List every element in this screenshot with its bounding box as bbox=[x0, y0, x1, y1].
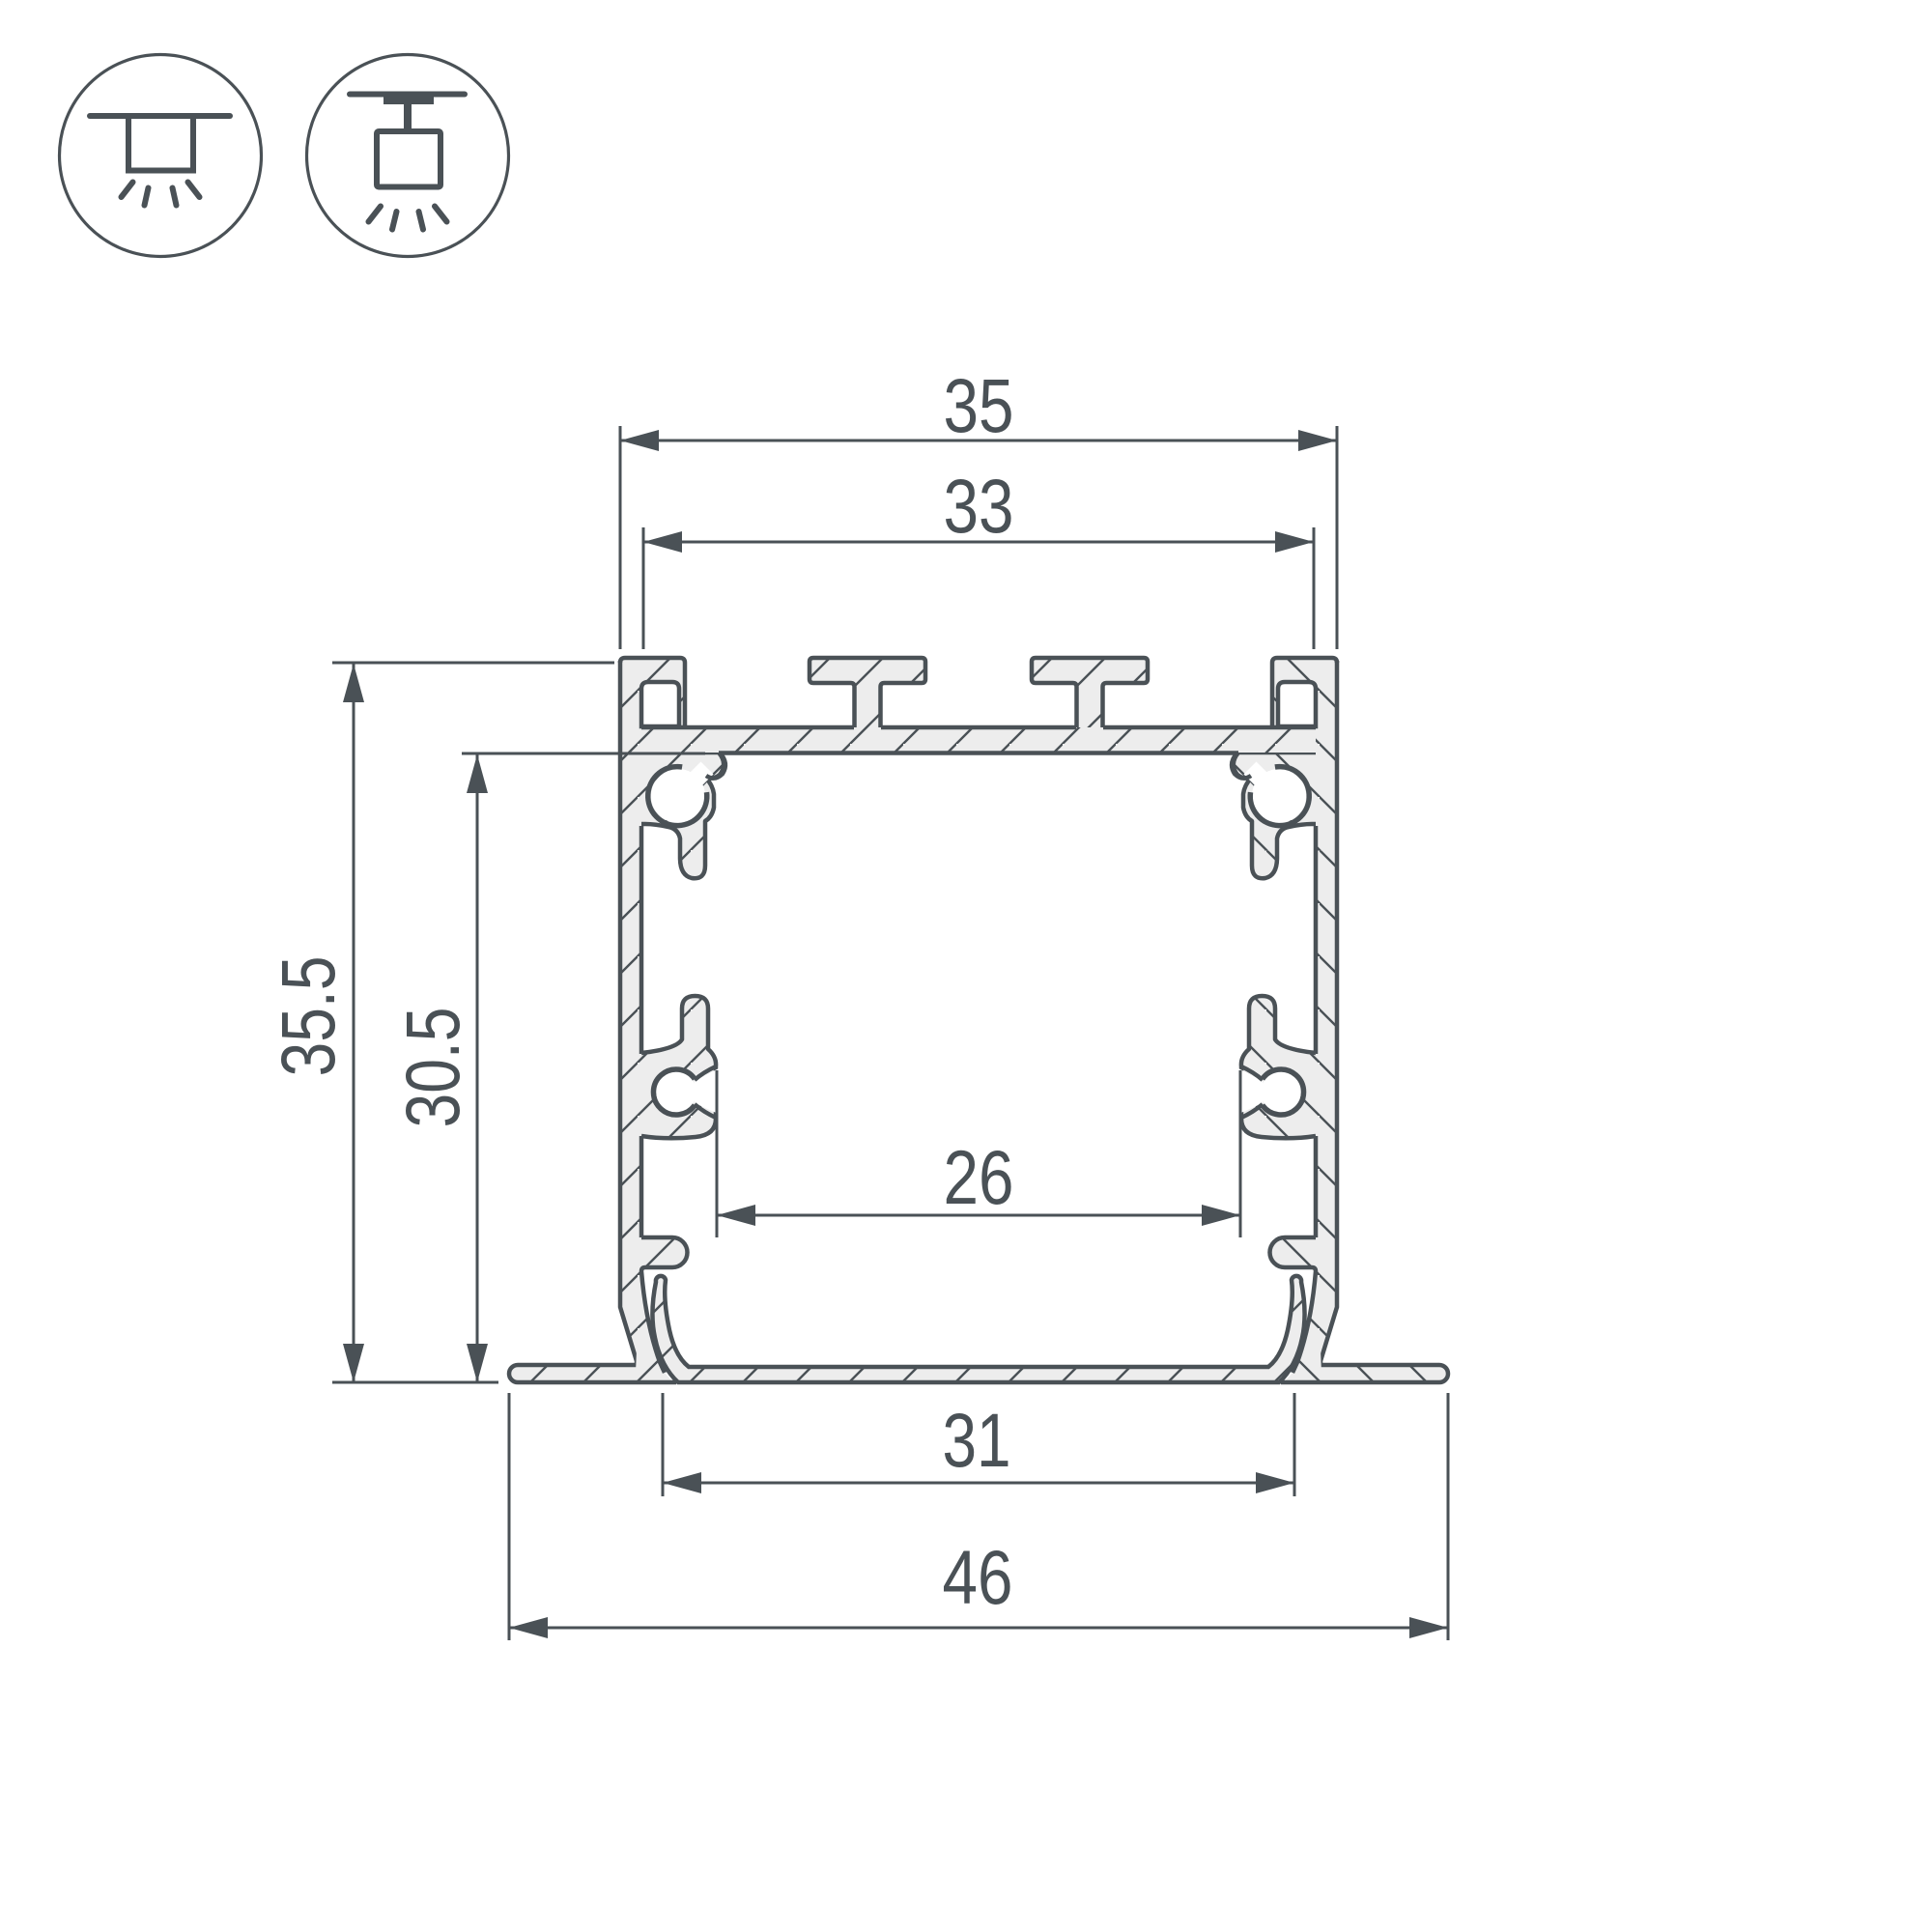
svg-text:31: 31 bbox=[943, 1397, 1011, 1483]
svg-text:26: 26 bbox=[944, 1134, 1014, 1220]
svg-text:35.5: 35.5 bbox=[265, 956, 351, 1077]
svg-text:33: 33 bbox=[944, 463, 1014, 549]
svg-text:35: 35 bbox=[944, 362, 1014, 448]
svg-text:30.5: 30.5 bbox=[389, 1008, 475, 1128]
svg-text:46: 46 bbox=[943, 1534, 1013, 1620]
